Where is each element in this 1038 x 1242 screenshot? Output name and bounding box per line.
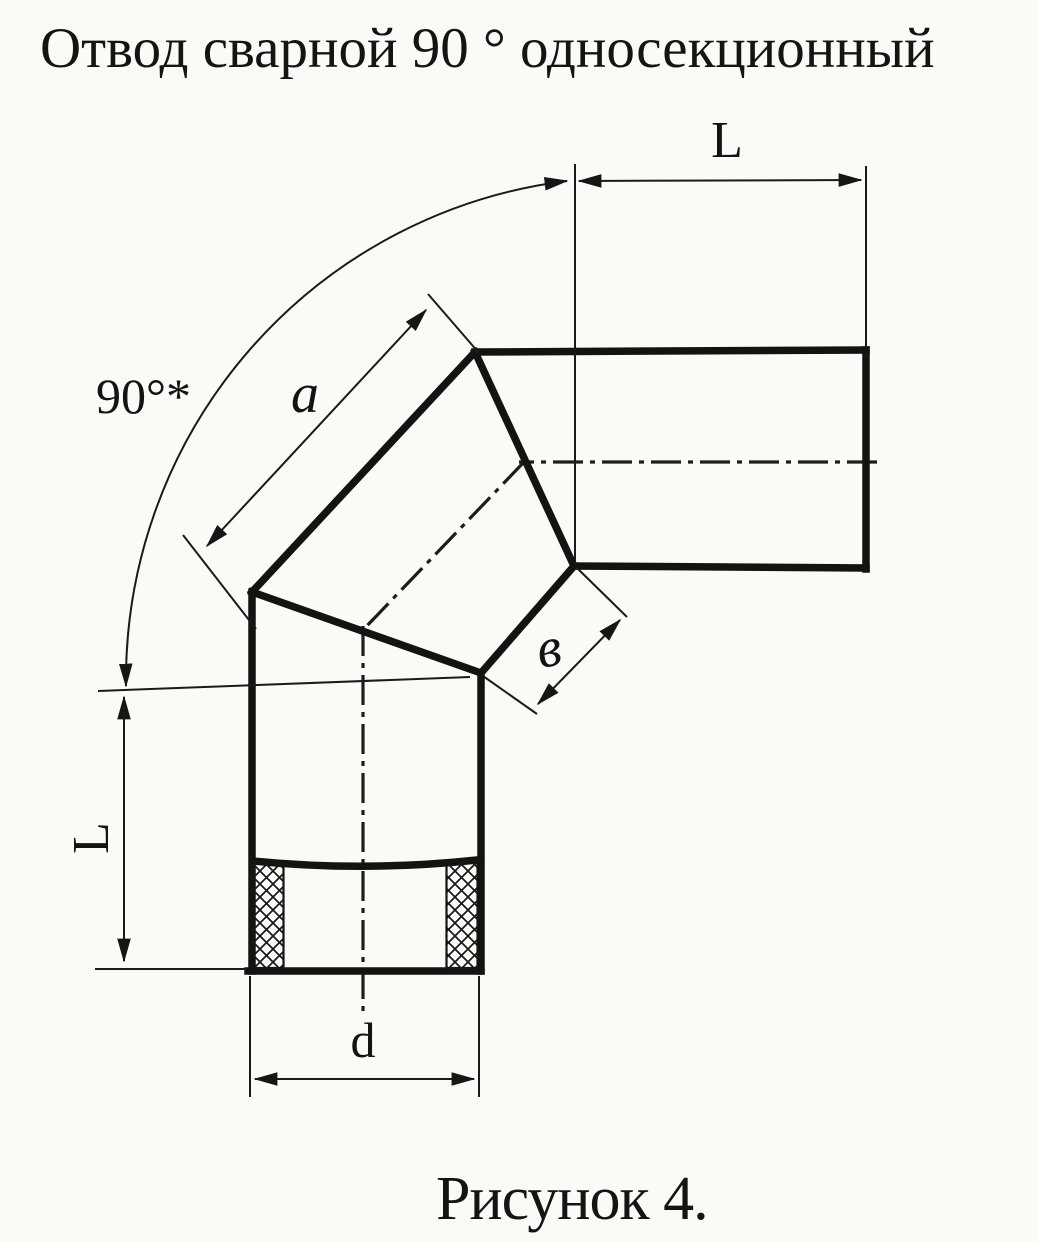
label-d: d xyxy=(351,1012,376,1068)
section-hatch xyxy=(253,861,478,968)
label-L-top: L xyxy=(711,112,743,169)
label-L-left: L xyxy=(63,822,120,854)
elbow-diagram: L 90°* a в L d xyxy=(0,0,1038,1242)
label-b: в xyxy=(532,616,567,681)
label-angle: 90°* xyxy=(96,368,191,424)
angle-arc xyxy=(126,181,567,686)
scanned-page: Отвод сварной 90 ° односекционный xyxy=(0,0,1038,1242)
dimension-lines xyxy=(124,180,861,1079)
label-a: a xyxy=(291,363,319,425)
figure-caption: Рисунок 4. xyxy=(436,1164,708,1235)
centerlines xyxy=(362,462,877,1012)
dim-line-a xyxy=(207,310,426,546)
dim-line-L-top xyxy=(579,180,861,181)
